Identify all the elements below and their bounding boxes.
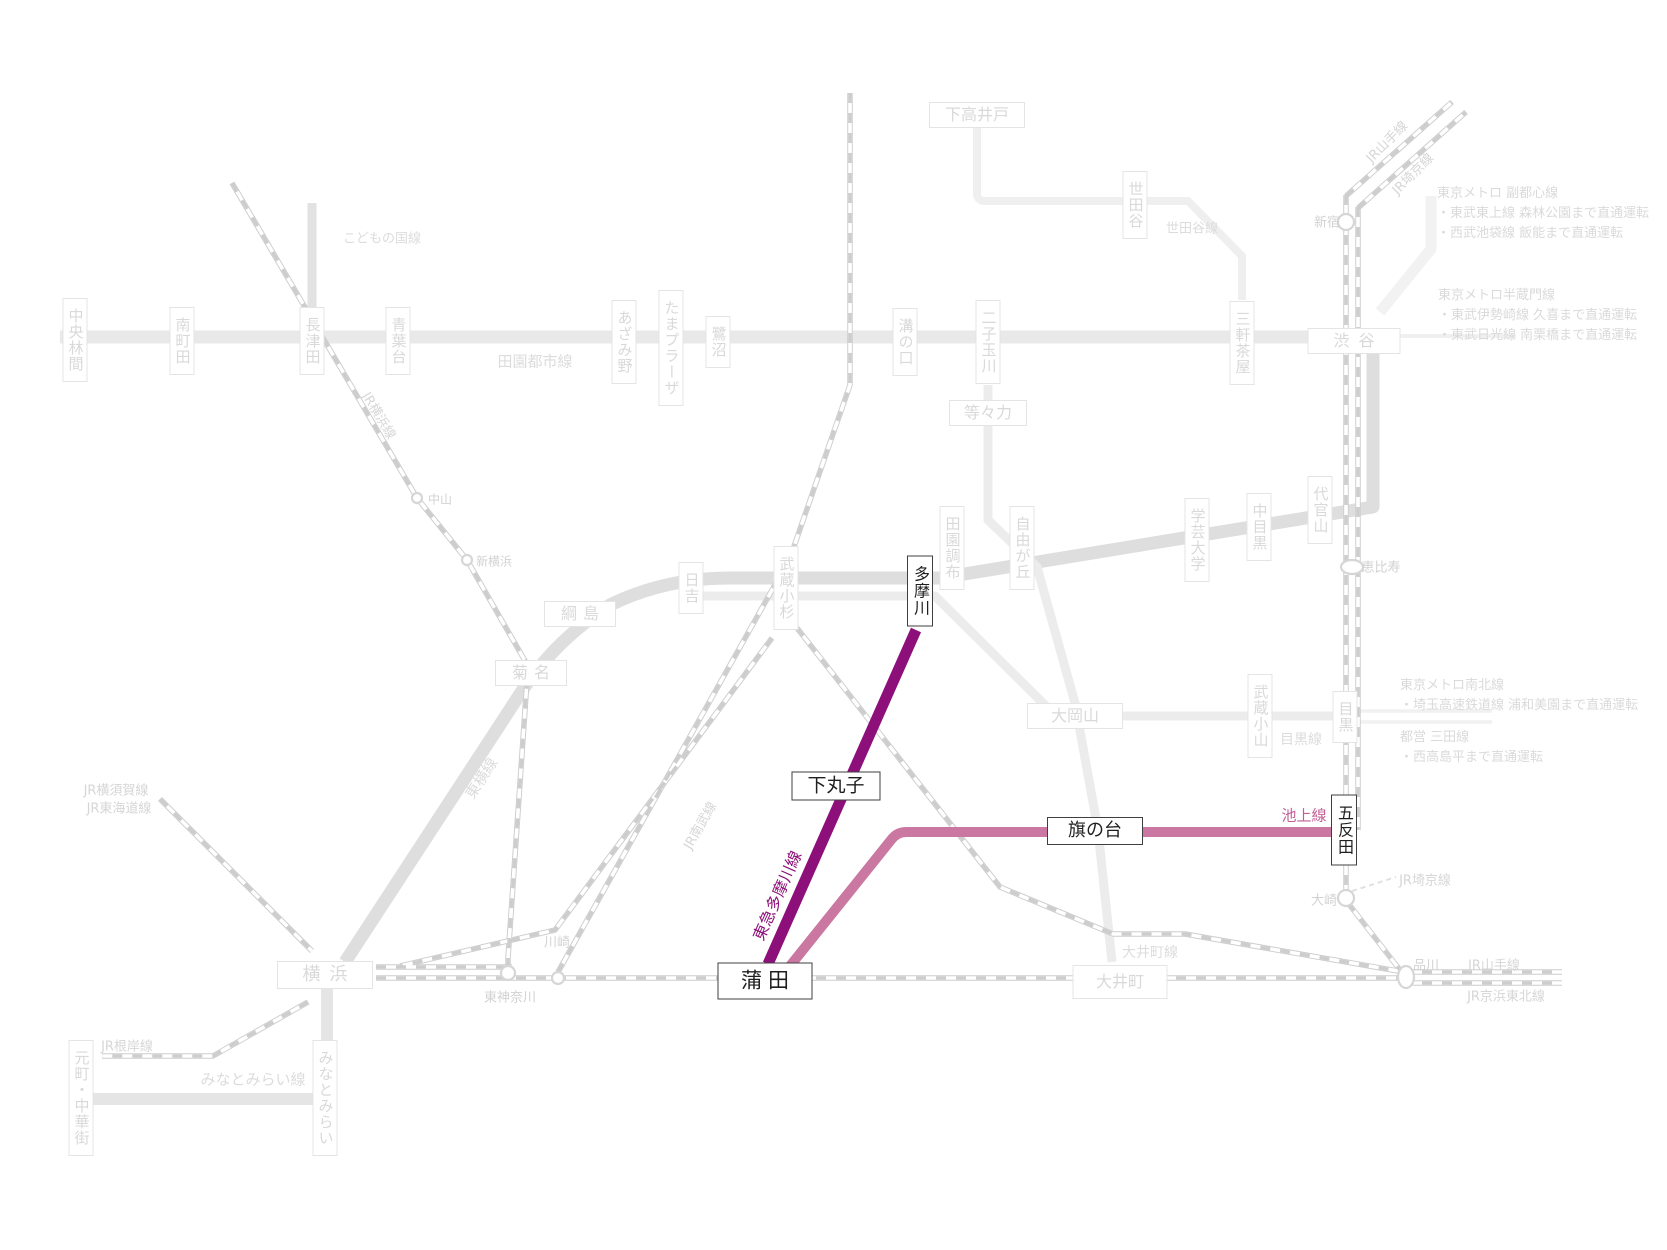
station-box-sangenjaya: 三軒茶屋 <box>1230 301 1255 385</box>
station-box-musashikoyama: 武蔵小山 <box>1248 674 1273 758</box>
station-box-kamata: 蒲田 <box>718 963 813 1000</box>
station-dot-higashikanagawa <box>501 966 515 980</box>
station-box-saginuma: 鷺沼 <box>706 316 731 368</box>
station-box-gotanda: 五反田 <box>1331 795 1357 866</box>
station-box-tamagawa: 多摩川 <box>907 556 933 627</box>
station-label-kawasaki: 川崎 <box>544 932 570 951</box>
railway-route-map: 中央林間 南町田 長津田 青葉台 あざみ野 たまプラーザ 鷺沼 溝の口 二子玉川… <box>0 0 1667 1250</box>
line-label-jr-yamanote-bottom: JR山手線 <box>1468 955 1520 974</box>
station-dot-nakayama <box>412 493 422 503</box>
annotation-fukutoshin-line1: 東京メトロ 副都心線 <box>1437 184 1649 204</box>
line-label-jr-yokosuka: JR横須賀線 <box>84 780 149 799</box>
annotation-mita-line1: 都営 三田線 <box>1400 728 1543 748</box>
line-label-meguro: 目黒線 <box>1280 729 1322 749</box>
station-dot-kawasaki <box>552 972 564 984</box>
station-box-shimomaruko: 下丸子 <box>792 772 881 801</box>
line-label-denentoshi: 田園都市線 <box>497 351 572 372</box>
station-box-shimotakaido: 下高井戸 <box>929 102 1025 128</box>
line-label-jr-keihintohoku: JR京浜東北線 <box>1467 986 1545 1005</box>
annotation-mita: 都営 三田線 ・西高島平まで直通運転 <box>1400 728 1543 768</box>
line-toyoko-path <box>345 345 1373 962</box>
station-box-minatomirai: みなとみらい <box>313 1040 338 1156</box>
annotation-namboku-line2: ・埼玉高速鉄道線 浦和美園まで直通運転 <box>1400 696 1638 716</box>
station-box-nakameguro: 中目黒 <box>1247 493 1272 561</box>
line-setagaya-path <box>977 128 1242 300</box>
station-box-setagaya: 世田谷 <box>1123 171 1148 239</box>
station-box-okayama: 大岡山 <box>1027 703 1123 729</box>
line-label-ikegami: 池上線 <box>1281 805 1326 826</box>
station-box-azamino: あざみ野 <box>612 300 637 384</box>
station-box-nagatsuta: 長津田 <box>300 307 325 375</box>
annotation-hanzomon-line2: ・東武伊勢崎線 久喜まで直通運転 <box>1438 306 1637 326</box>
station-label-nakayama: 中山 <box>428 491 452 508</box>
line-label-kodomonokuni: こどもの国線 <box>343 228 421 247</box>
station-box-aobadai: 青葉台 <box>386 307 411 375</box>
annotation-namboku: 東京メトロ南北線 ・埼玉高速鉄道線 浦和美園まで直通運転 <box>1400 676 1638 716</box>
station-box-mizonokuchi: 溝の口 <box>893 308 918 376</box>
annotation-fukutoshin-line2: ・東武東上線 森林公園まで直通運転 <box>1437 204 1649 224</box>
annotation-fukutoshin: 東京メトロ 副都心線 ・東武東上線 森林公園まで直通運転 ・西武池袋線 飯能まで… <box>1437 184 1649 244</box>
annotation-mita-line2: ・西高島平まで直通運転 <box>1400 748 1543 768</box>
station-box-todoroki: 等々力 <box>949 400 1027 426</box>
station-box-motomachi: 元町・中華街 <box>69 1040 94 1156</box>
line-label-oimachi: 大井町線 <box>1122 942 1178 962</box>
annotation-hanzomon-line1: 東京メトロ半蔵門線 <box>1438 286 1637 306</box>
station-box-kikuna: 菊名 <box>495 660 567 686</box>
line-label-jr-tokaido: JR東海道線 <box>87 798 152 817</box>
rail-lines-layer <box>0 0 1667 1250</box>
line-label-jr-negishi: JR根岸線 <box>101 1036 153 1055</box>
annotation-hanzomon: 東京メトロ半蔵門線 ・東武伊勢崎線 久喜まで直通運転 ・東武日光線 南栗橋まで直… <box>1438 286 1637 346</box>
station-label-shinyokohama: 新横浜 <box>476 553 512 570</box>
station-box-shibuya: 渋谷 <box>1308 328 1401 354</box>
station-dot-shinjuku <box>1338 214 1354 230</box>
station-box-oimachi: 大井町 <box>1073 965 1168 999</box>
line-label-setagaya: 世田谷線 <box>1166 218 1218 237</box>
station-box-tsunashima: 綱島 <box>544 601 616 627</box>
line-shibuya-northeast-path <box>1380 196 1431 312</box>
jr-saikyo-pointer-path <box>1352 877 1396 891</box>
station-box-chuorinkan: 中央林間 <box>63 298 88 382</box>
station-dot-shinagawa <box>1398 966 1414 988</box>
station-label-shinjuku: 新宿 <box>1314 212 1340 231</box>
annotation-hanzomon-line3: ・東武日光線 南栗橋まで直通運転 <box>1438 326 1637 346</box>
station-box-futakotamagawa: 二子玉川 <box>976 300 1001 384</box>
annotation-fukutoshin-line3: ・西武池袋線 飯能まで直通運転 <box>1437 224 1649 244</box>
station-label-higashikanagawa: 東神奈川 <box>484 987 536 1006</box>
station-box-gakugeidaigaku: 学芸大学 <box>1185 498 1210 582</box>
line-label-minatomirai: みなとみらい線 <box>200 1069 305 1090</box>
station-box-minamimachida: 南町田 <box>170 307 195 375</box>
station-box-denenchofu: 田園調布 <box>940 506 965 590</box>
station-label-ebisu: 恵比寿 <box>1361 557 1400 576</box>
station-label-osaki: 大崎 <box>1311 890 1337 909</box>
station-label-shinagawa: 品川 <box>1413 955 1439 974</box>
station-box-daikanyama: 代官山 <box>1308 476 1333 544</box>
annotation-namboku-line1: 東京メトロ南北線 <box>1400 676 1638 696</box>
station-box-hatanodai: 旗の台 <box>1047 817 1143 845</box>
station-box-yokohama: 横浜 <box>277 961 373 989</box>
station-box-hiyoshi: 日吉 <box>679 562 704 614</box>
station-box-jiyugaoka: 自由が丘 <box>1010 506 1035 590</box>
station-dot-ebisu <box>1341 560 1363 574</box>
line-oimachi-path <box>988 385 1112 962</box>
station-box-meguro: 目黒 <box>1333 691 1358 743</box>
station-dot-shinyokohama <box>462 555 472 565</box>
station-dot-osaki <box>1338 890 1354 906</box>
line-label-jr-saikyo-osaki: JR埼京線 <box>1399 870 1451 889</box>
station-box-tamaplaza: たまプラーザ <box>659 290 684 406</box>
station-box-musashikosugi: 武蔵小杉 <box>774 546 799 630</box>
